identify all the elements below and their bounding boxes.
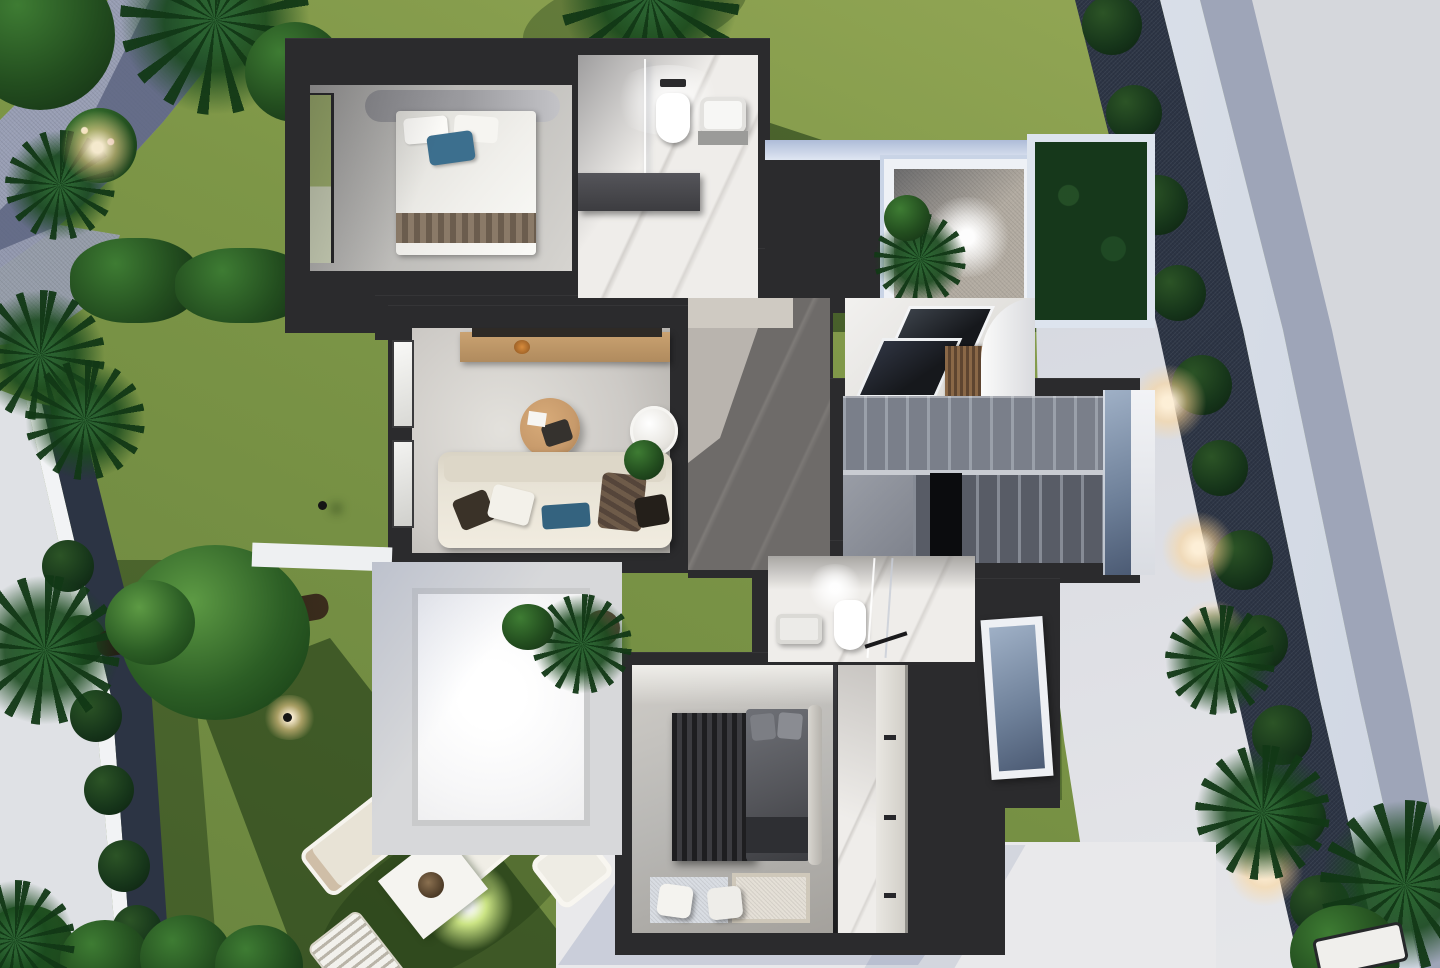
vanity-counter — [578, 173, 700, 211]
pillow-teal — [541, 502, 591, 529]
cream-sofa — [438, 452, 672, 548]
glass-door-edge — [833, 665, 837, 933]
wardrobe-handle — [884, 893, 896, 898]
scene-aerial-floorplan — [0, 0, 1440, 968]
potted-plant-leaf — [502, 604, 554, 650]
console-decor — [514, 340, 530, 354]
bush — [84, 765, 134, 815]
sofa-plant — [624, 440, 664, 480]
glazed-corridor — [980, 616, 1053, 780]
living-window — [392, 340, 414, 428]
garden-spotlight — [60, 110, 135, 185]
washbasin — [776, 614, 822, 644]
living-room — [412, 328, 670, 553]
stair-void — [930, 473, 962, 563]
tv-panel — [472, 328, 662, 337]
wood-slat-door — [945, 346, 985, 400]
rug — [732, 873, 810, 923]
glazed-corridor-glass — [989, 625, 1045, 772]
hall-doorway-light — [688, 298, 793, 328]
potted-plant — [532, 594, 632, 694]
house-wall — [765, 158, 883, 313]
stair-flight-upper — [843, 396, 1105, 472]
wardrobe-handle — [884, 735, 896, 740]
bush — [1192, 440, 1248, 496]
bed-headboard — [808, 705, 822, 865]
stair-landing — [843, 475, 913, 563]
stake-light — [318, 501, 327, 510]
entry-vestibule — [845, 298, 1035, 400]
wall-light-glow — [1160, 512, 1236, 584]
dark-bed — [746, 709, 810, 861]
palm-tree — [25, 360, 145, 480]
tv-console — [460, 332, 670, 362]
curtains — [672, 713, 754, 861]
stair-window-sill — [1131, 390, 1155, 575]
glass-balustrade — [1103, 390, 1131, 575]
washbasin-cabinet — [698, 131, 748, 145]
bathroom-2 — [768, 556, 975, 662]
bedroom-2 — [632, 665, 835, 933]
wardrobe-handle — [884, 815, 896, 820]
pillow-black — [634, 493, 671, 528]
bush — [1150, 265, 1206, 321]
bush — [1106, 85, 1162, 141]
toilet — [834, 600, 866, 650]
bathroom-1 — [578, 55, 758, 298]
hall-light-patch — [688, 298, 830, 570]
room-shade — [310, 85, 572, 271]
hedge-patch — [1035, 142, 1147, 320]
table-book — [527, 411, 547, 427]
bush — [98, 840, 150, 892]
pillow — [750, 713, 777, 741]
coffee-table — [520, 398, 580, 458]
toilet — [656, 93, 690, 143]
leafy-plant — [1165, 605, 1275, 715]
flush-plate — [660, 79, 686, 87]
white-terrace — [372, 562, 622, 855]
living-window — [392, 440, 414, 528]
courtyard-plant — [884, 195, 930, 241]
pillow — [777, 712, 803, 740]
hallway — [688, 298, 830, 570]
bed-throw — [746, 817, 810, 853]
wardrobe-cabinet — [876, 665, 908, 933]
courtyard-lightwell — [880, 155, 1038, 317]
table-plant — [418, 872, 444, 898]
armchair — [706, 885, 743, 920]
tree-lobe — [105, 580, 195, 665]
room-shade — [632, 665, 835, 705]
washbasin — [700, 97, 746, 133]
stake-light — [283, 713, 292, 722]
armchair — [656, 883, 694, 919]
pillow-white — [487, 483, 536, 526]
bedroom-1 — [310, 85, 572, 271]
